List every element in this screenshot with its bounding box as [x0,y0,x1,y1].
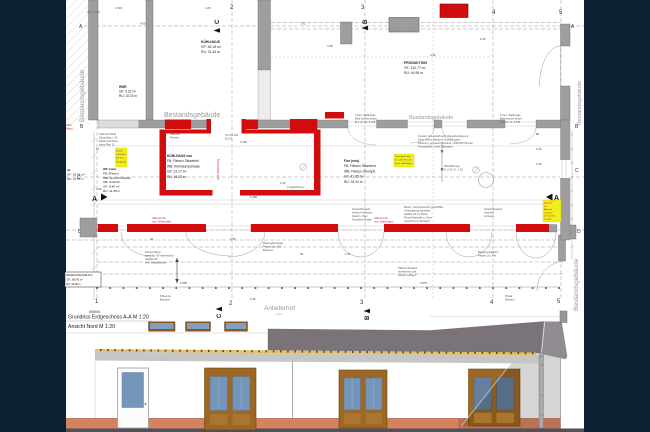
svg-text:1.30: 1.30 [280,181,286,185]
svg-text:Wand: Wand [66,127,73,131]
svg-text:C: C [575,168,579,174]
svg-text:B: 1.26 / H: 2.26: B: 1.26 / H: 2.26 [395,160,412,162]
svg-text:D: D [577,229,581,235]
svg-text:GF: 110.77 m²: GF: 110.77 m² [404,66,426,70]
svg-text:Detail Anschluss: Detail Anschluss [99,139,119,143]
svg-text:KÜHLHAUS: KÜHLHAUS [201,39,221,44]
svg-text:3.85: 3.85 [230,237,236,241]
svg-text:Bestand: Bestand [544,202,553,205]
svg-text:aufnehmen und: aufnehmen und [398,270,417,274]
svg-text:62: 62 [96,147,100,151]
svg-text:Bewegungsfläche: Bewegungsfläche [478,250,499,254]
svg-text:Abbruch: Abbruch [544,208,553,211]
svg-text:26: 26 [150,237,154,241]
svg-text:Fenster: Kunststoff weiß, Dopp: Fenster: Kunststoff weiß, Doppelverglasu… [418,134,469,138]
svg-text:WF (neu): WF (neu) [103,167,116,171]
svg-text:86: 86 [536,132,540,136]
svg-text:2.885: 2.885 [180,281,187,285]
svg-text:Rasengitterziegel: Rasengitterziegel [263,241,283,245]
svg-text:OB: Anstrich: OB: Anstrich [103,180,120,184]
svg-text:1.51: 1.51 [345,252,351,256]
svg-text:Phase: Phase [505,294,513,298]
svg-text:B: B [363,19,369,24]
svg-text:C: C [217,313,223,318]
svg-text:Bestandsgebäude: Bestandsgebäude [409,115,453,121]
svg-text:B: B [365,315,371,320]
svg-text:Tor: Tor [544,205,547,208]
svg-text:Pflaster Bestand: Pflaster Bestand [398,266,418,270]
svg-text:Abbr.: Abbr. [66,123,72,127]
svg-text:RU: 10.02 m: RU: 10.02 m [119,94,137,98]
svg-text:3.25: 3.25 [205,6,211,10]
svg-text:Phaser 2x LKW: Phaser 2x LKW [263,245,282,249]
svg-text:Flur (neu): Flur (neu) [344,159,359,163]
svg-text:neu: Sektionaltor: neu: Sektionaltor [374,220,394,224]
svg-text:Grundriss Erdgeschoss A-A M 1:: Grundriss Erdgeschoss A-A M 1:20 [68,315,149,321]
svg-text:Sturz: Beton Bestand, Anstrich: Sturz: Beton Bestand, Anstrich weiss [418,138,461,142]
svg-text:WB: Anstrich/Tapete: WB: Anstrich/Tapete [103,176,131,180]
svg-text:RU: 44.96 m: RU: 44.96 m [404,71,423,75]
svg-text:B: 2.26 / H: 2.26: B: 2.26 / H: 2.26 [444,168,463,172]
svg-text:seitl. Radabweiser: seitl. Radabweiser [145,261,166,265]
svg-text:RU: 96.98 m: RU: 96.98 m [67,283,81,286]
svg-text:2.26: 2.26 [250,297,256,301]
svg-text:B: 1.01 / H: 2.135: B: 1.01 / H: 2.135 [355,120,376,124]
svg-text:5.385: 5.385 [250,195,257,199]
svg-text:Durchbruch neu: Durchbruch neu [395,155,411,158]
svg-text:4.50: 4.50 [140,22,146,26]
svg-text:94: 94 [300,252,304,256]
svg-text:Bestand: Bestand [160,298,170,302]
svg-text:neu: Sektionaltor: neu: Sektionaltor [152,220,172,224]
svg-text:Bestandsgebäude: Bestandsgebäude [573,258,580,311]
svg-text:Ansicht Nord M 1:20: Ansicht Nord M 1:20 [68,324,115,330]
svg-text:Phaser 2x LKW: Phaser 2x LKW [478,254,497,258]
svg-text:7.02: 7.02 [300,22,306,26]
svg-text:erneuern: erneuern [484,214,495,218]
svg-text:RU: 33.34 m: RU: 33.34 m [344,180,363,184]
svg-text:Anstrich: Anstrich [484,211,494,215]
svg-text:Bestandsgebäude: Bestandsgebäude [577,81,583,125]
svg-text:Wandöffnung: Wandöffnung [444,164,460,168]
svg-text:Detail s. Plan: Detail s. Plan [352,214,368,218]
svg-text:Bestandsgebäude: Bestandsgebäude [79,69,86,122]
svg-text:Türabdichtung: Türabdichtung [287,185,304,189]
svg-text:Nische: Nische [116,151,123,153]
svg-text:ersetzen: ersetzen [544,211,553,214]
svg-text:Kies: Kies [276,312,282,316]
svg-text:beidseitig: beidseitig [116,160,126,163]
svg-text:Tür KS 100: Tür KS 100 [225,133,239,137]
svg-text:Neuaufbau n. B.: Neuaufbau n. B. [99,136,118,140]
svg-text:Abbruch Tor: Abbruch Tor [374,216,388,220]
svg-text:1.545: 1.545 [115,6,122,10]
svg-text:KÜHLHAUS neu: KÜHLHAUS neu [167,154,192,158]
svg-text:GF: 46.18 m²: GF: 46.18 m² [201,45,222,49]
svg-text:d. Fluchttür: d. Fluchttür [544,215,555,218]
svg-text:Türen: Stahlzarge: Türen: Stahlzarge [500,113,521,117]
svg-text:Blatt kunstst.besch.: Blatt kunstst.besch. [500,117,523,121]
svg-text:3.875: 3.875 [420,281,427,285]
svg-text:Rampe Beton: Rampe Beton [145,250,161,254]
svg-text:C: C [215,19,221,24]
svg-text:PRODUKTION: PRODUKTION [404,61,427,65]
svg-text:FB: Fliesen Säurefest: FB: Fliesen Säurefest [344,164,376,168]
svg-text:WB: Kühlraumpaneele: WB: Kühlraumpaneele [167,164,200,168]
svg-text:RU: 27.87 m: RU: 27.87 m [67,177,84,181]
svg-text:HWR: HWR [119,85,127,89]
svg-text:2.26: 2.26 [536,147,542,151]
svg-text:RU: 16.02 m: RU: 16.02 m [167,175,186,179]
svg-text:Blatt kunstst.besch.: Blatt kunstst.besch. [355,117,378,121]
svg-text:A: A [554,195,559,202]
svg-text:4.98: 4.98 [430,53,436,57]
svg-text:WB: Fliesen (Stumpf): WB: Fliesen (Stumpf) [344,169,375,173]
svg-text:Boden: Verbundestrich geschlif: Boden: Verbundestrich geschliffen [404,205,444,209]
svg-text:GF: 13.17 m²: GF: 13.17 m² [167,170,187,174]
svg-text:Bestand: Bestand [263,248,273,252]
svg-text:3a: 3a [67,168,71,172]
svg-text:GF: 41.35 m²: GF: 41.35 m² [344,175,364,179]
svg-text:2.425: 2.425 [240,140,247,144]
svg-text:RU: 31.44 m: RU: 31.44 m [201,50,220,54]
svg-text:Bestand: Bestand [505,298,515,302]
svg-text:wieder verlegen: wieder verlegen [398,273,417,277]
svg-text:geschalt, OF besenstrich: geschalt, OF besenstrich [145,254,174,258]
svg-text:BEWEGUNGSABLAUF: BEWEGUNGSABLAUF [67,274,94,277]
svg-text:1.25: 1.25 [536,162,542,166]
svg-text:T30 RS: T30 RS [544,219,552,221]
svg-text:Fenster: Fenster [170,136,179,140]
svg-text:FB: Fliesen: FB: Fliesen [103,171,119,175]
svg-text:Versiegelung säurefest: Versiegelung säurefest [404,209,431,213]
svg-text:Gefälle 6%: Gefälle 6% [145,257,158,261]
svg-text:Fensterbank: innen Naturstein: Fensterbank: innen Naturstein [418,145,453,149]
svg-text:2.26: 2.26 [480,37,486,41]
svg-text:Phase 1a: Phase 1a [160,294,172,298]
svg-text:Sturz: Stahlträger: Sturz: Stahlträger [395,162,412,165]
svg-text:schließen: schließen [116,154,126,156]
svg-text:RU: 11.38 m: RU: 11.38 m [103,189,121,193]
svg-text:GF: 18.46 m²: GF: 18.46 m² [67,173,85,177]
svg-text:Rinne Edelstahl m. Rost: Rinne Edelstahl m. Rost [404,216,432,220]
svg-text:Abbruch: Abbruch [170,132,180,136]
svg-text:Gefälle 2% zu Rinne: Gefälle 2% zu Rinne [404,212,428,216]
svg-text:GF: 8.40 m²: GF: 8.40 m² [103,185,120,189]
svg-text:Abbruch Wand: Abbruch Wand [99,132,117,136]
svg-text:siehe Plan 12: siehe Plan 12 [99,143,115,147]
svg-text:Abbruch Tor: Abbruch Tor [152,216,166,220]
svg-text:A: A [92,196,97,203]
svg-text:Anschluss prüfen: Anschluss prüfen [352,218,372,222]
svg-text:B: 1.01 / H: 2.135: B: 1.01 / H: 2.135 [500,120,521,124]
svg-text:Bestandsgebäude: Bestandsgebäude [164,112,221,119]
svg-text:Anstrich erneuern: Anstrich erneuern [352,211,373,215]
svg-text:Anlieferhof: Anlieferhof [264,305,295,312]
svg-text:Türen: Stahlzarge: Türen: Stahlzarge [355,113,376,117]
svg-text:GF: 5.32 m²: GF: 5.32 m² [119,90,136,94]
svg-text:KS 11.5: KS 11.5 [116,158,124,160]
svg-text:FB: Fliesen Säurefest: FB: Fliesen Säurefest [167,159,199,163]
svg-text:GF: 166.90 m²: GF: 166.90 m² [67,278,83,281]
svg-text:Anschluss an Bestand: Anschluss an Bestand [404,219,430,223]
svg-text:4.38: 4.38 [327,44,333,48]
svg-text:1.99: 1.99 [96,187,102,191]
svg-text:Sockel Bestand: Sockel Bestand [484,207,503,211]
svg-text:E18 Abdichtung: E18 Abdichtung [216,159,220,180]
svg-text:B:1.01: B:1.01 [225,137,233,141]
svg-text:Sockel Bestand: Sockel Bestand [352,207,371,211]
svg-text:Sockelschiene: Sockelschiene [287,189,304,193]
